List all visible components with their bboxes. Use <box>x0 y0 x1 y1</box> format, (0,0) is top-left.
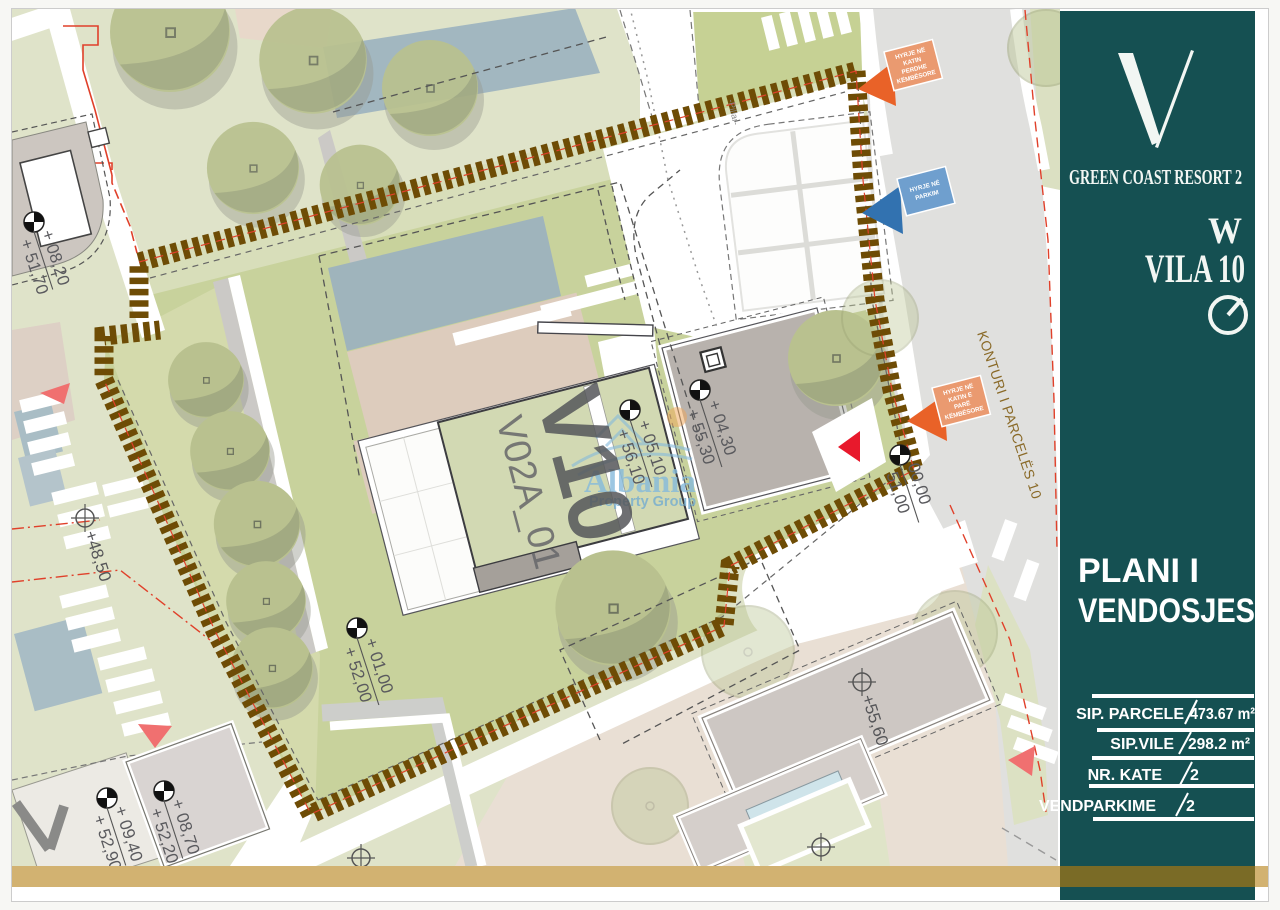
svg-text:NR. KATE: NR. KATE <box>1088 767 1163 784</box>
svg-text:VENDPARKIME: VENDPARKIME <box>1039 798 1156 815</box>
svg-text:298.2 m²: 298.2 m² <box>1188 736 1250 753</box>
svg-text:2: 2 <box>1190 767 1199 784</box>
svg-text:GREEN COAST RESORT 2: GREEN COAST RESORT 2 <box>1069 166 1242 189</box>
svg-text:W: W <box>1208 210 1242 252</box>
svg-text:PLANI I: PLANI I <box>1078 552 1199 590</box>
svg-text:2: 2 <box>1186 798 1195 815</box>
svg-text:473.67 m²: 473.67 m² <box>1190 706 1255 723</box>
svg-text:VILA 10: VILA 10 <box>1145 247 1245 291</box>
svg-text:SIP. PARCELE: SIP. PARCELE <box>1076 706 1184 723</box>
svg-text:VENDOSJES: VENDOSJES <box>1078 592 1255 630</box>
svg-text:SIP.VILE: SIP.VILE <box>1110 736 1174 753</box>
